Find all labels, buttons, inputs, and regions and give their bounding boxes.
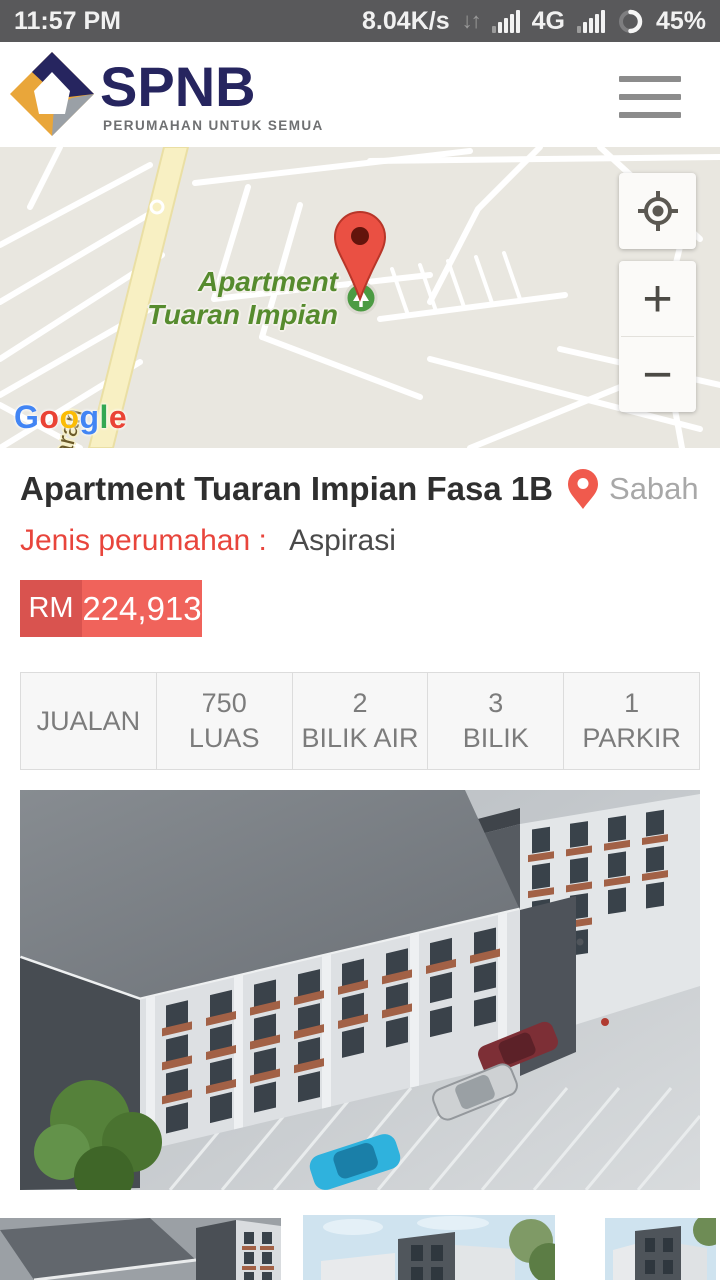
signal-bars-icon bbox=[492, 9, 520, 33]
google-attribution[interactable]: Google bbox=[14, 399, 127, 436]
housing-type-row: Jenis perumahan : Aspirasi bbox=[20, 524, 396, 558]
signal-bars-icon-2 bbox=[577, 9, 605, 33]
battery-circle-icon bbox=[617, 8, 644, 35]
property-photo-thumb-3[interactable] bbox=[605, 1218, 716, 1280]
map-poi-label: Apartment Tuaran Impian bbox=[147, 265, 338, 331]
brand-tagline: PERUMAHAN UNTUK SEMUA bbox=[103, 118, 324, 133]
app-header: SPNB PERUMAHAN UNTUK SEMUA bbox=[0, 42, 720, 147]
price-badge: RM 224,913 bbox=[20, 580, 202, 637]
battery-percent: 45% bbox=[656, 7, 706, 36]
my-location-icon bbox=[636, 189, 680, 233]
listing-state: Sabah bbox=[609, 471, 699, 507]
location-pin-icon bbox=[567, 468, 599, 510]
network-type: 4G bbox=[532, 7, 565, 36]
specs-table: JUALAN 750 LUAS 2 BILIK AIR 3 BILIK 1 PA… bbox=[20, 672, 700, 770]
map-marker-icon[interactable] bbox=[330, 209, 390, 305]
my-location-button[interactable] bbox=[619, 173, 696, 249]
listing-title-row: Apartment Tuaran Impian Fasa 1B Sabah bbox=[20, 468, 700, 510]
status-bar: 11:57 PM 8.04K/s ↓↑ 4G 45% bbox=[0, 0, 720, 42]
housing-type-label: Jenis perumahan : bbox=[20, 524, 267, 557]
zoom-out-button[interactable]: − bbox=[619, 337, 696, 412]
housing-type-value: Aspirasi bbox=[289, 524, 396, 557]
property-photo-main[interactable] bbox=[20, 790, 700, 1190]
app-screen: 11:57 PM 8.04K/s ↓↑ 4G 45% SPNB PERUMAHA… bbox=[0, 0, 720, 1280]
status-time: 11:57 PM bbox=[14, 7, 121, 36]
price-value: 224,913 bbox=[82, 580, 202, 637]
spec-bathrooms: 2 BILIK AIR bbox=[293, 673, 428, 769]
spec-parking: 1 PARKIR bbox=[564, 673, 699, 769]
property-photo-thumb-2[interactable] bbox=[303, 1215, 555, 1280]
price-currency: RM bbox=[20, 580, 82, 637]
map-canvas[interactable]: Apartment Tuaran Impian Jalan Tuaran Goo… bbox=[0, 147, 720, 448]
spec-status: JUALAN bbox=[21, 673, 156, 769]
network-activity-icon: ↓↑ bbox=[462, 8, 480, 34]
spec-area: 750 LUAS bbox=[157, 673, 292, 769]
zoom-in-button[interactable]: + bbox=[619, 261, 696, 336]
zoom-controls: + − bbox=[619, 261, 696, 412]
network-speed: 8.04K/s bbox=[362, 7, 450, 36]
spec-bedrooms: 3 BILIK bbox=[428, 673, 563, 769]
listing-title: Apartment Tuaran Impian Fasa 1B bbox=[20, 470, 553, 508]
spnb-logo-icon bbox=[8, 50, 96, 138]
menu-button[interactable] bbox=[619, 76, 681, 118]
brand-name: SPNB bbox=[100, 54, 256, 119]
property-photo-thumb-1[interactable] bbox=[0, 1218, 281, 1280]
